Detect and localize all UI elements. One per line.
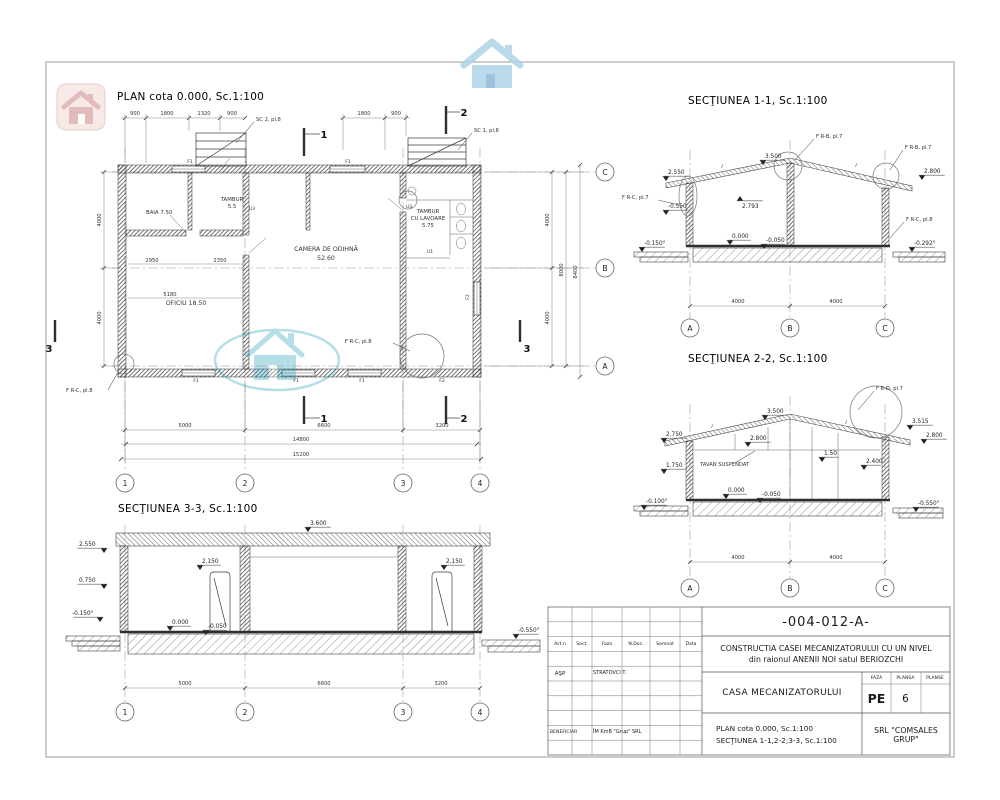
svg-text:3: 3 xyxy=(524,344,531,355)
svg-text:2.150: 2.150 xyxy=(202,559,219,565)
svg-text:4000: 4000 xyxy=(731,299,744,305)
svg-text:1: 1 xyxy=(321,414,328,425)
roof-2-2 xyxy=(665,414,910,446)
watermark-red-house xyxy=(57,84,105,130)
section-3-3-grid xyxy=(125,525,480,703)
dims-1-1: 4000 4000 A B C xyxy=(681,299,894,337)
beneficiar-label: BENEFICIAR xyxy=(550,725,594,740)
svg-text:2.550: 2.550 xyxy=(79,542,96,548)
svg-text:2: 2 xyxy=(461,414,468,425)
svg-text:-0.550°: -0.550° xyxy=(518,628,540,634)
section-2-2-grid xyxy=(690,396,885,580)
svg-text:A: A xyxy=(687,584,693,593)
svg-text:6600: 6600 xyxy=(317,681,330,687)
plan-dims-bottom: 5000 6600 3200 14800 15200 xyxy=(119,380,483,462)
room-oficiu: OFICIU 18.50 xyxy=(166,300,207,307)
section-1-1-title: SECŢIUNEA 1-1, Sc.1:100 xyxy=(688,95,828,107)
faza-header: FAZA xyxy=(862,672,891,684)
svg-text:F1: F1 xyxy=(187,159,193,165)
planse-value xyxy=(920,684,950,713)
plan-grid-lines xyxy=(112,148,596,470)
plansa-header: PLANSA xyxy=(891,672,920,684)
svg-text:2.150: 2.150 xyxy=(446,559,463,565)
svg-text:4000: 4000 xyxy=(829,555,842,561)
svg-text:F R-D, pl.7: F R-D, pl.7 xyxy=(876,386,903,392)
svg-text:4000: 4000 xyxy=(829,299,842,305)
drawing-sheet: PLAN cota 0.000, Sc.1:100 xyxy=(0,0,1000,800)
svg-text:2: 2 xyxy=(461,108,468,119)
room-camera-area: 52.60 xyxy=(317,255,335,262)
section-2-2-title: SECŢIUNEA 2-2, Sc.1:100 xyxy=(688,353,828,365)
section-3-3: SECŢIUNEA 3-3, Sc.1:100 3.600 xyxy=(66,503,540,721)
plan-grid-bubbles-bottom: 1 2 3 4 xyxy=(116,474,489,492)
svg-text:2.800: 2.800 xyxy=(926,433,943,439)
svg-text:3.600: 3.600 xyxy=(310,521,327,527)
svg-text:15200: 15200 xyxy=(293,452,310,458)
content-line-1: PLAN cota 0.000, Sc.1:100 xyxy=(716,723,862,734)
plan-dims-inner: 2950 2350 5180 xyxy=(128,258,243,298)
svg-text:3.515: 3.515 xyxy=(912,419,929,425)
object-name: CASA MECANIZATORULUI xyxy=(702,673,862,713)
callout-frc8-left: F R-C, pl.8 xyxy=(66,388,93,394)
svg-text:1.50: 1.50 xyxy=(824,451,837,457)
svg-text:3: 3 xyxy=(401,708,406,717)
svg-text:5000: 5000 xyxy=(178,681,191,687)
plan-title: PLAN cota 0.000, Sc.1:100 xyxy=(117,91,264,103)
svg-text:A: A xyxy=(687,324,693,333)
section-1-1: SECŢIUNEA 1-1, Sc.1:100 2.550 3.500 xyxy=(622,95,945,337)
svg-text:3: 3 xyxy=(46,344,53,355)
svg-text:A: A xyxy=(602,362,608,371)
svg-text:2.400: 2.400 xyxy=(866,459,883,465)
plan-walls xyxy=(118,165,481,377)
svg-text:1: 1 xyxy=(123,479,128,488)
svg-text:3.500: 3.500 xyxy=(765,154,782,160)
svg-text:2: 2 xyxy=(243,479,248,488)
plan-entrance-stairs xyxy=(196,133,466,166)
title-block: -004-012-A- CONSTRUCTIA CASEI MECANIZATO… xyxy=(548,607,950,755)
svg-text:900: 900 xyxy=(130,111,140,117)
svg-text:C: C xyxy=(882,584,887,593)
faza-value: PE xyxy=(862,684,891,713)
plan-dims-left: 4000 4000 xyxy=(97,170,118,368)
svg-text:0.000: 0.000 xyxy=(172,620,189,626)
ground-hatch-1-1 xyxy=(693,248,882,262)
walls-2-2 xyxy=(686,437,889,500)
project-line-1: CONSTRUCTIA CASEI MECANIZATORULUI CU UN … xyxy=(720,644,931,655)
svg-text:F R-C, pl.8: F R-C, pl.8 xyxy=(906,217,933,223)
svg-text:4: 4 xyxy=(478,708,483,717)
svg-text:C: C xyxy=(602,168,607,177)
svg-text:F1: F1 xyxy=(345,159,351,165)
plan-dims-right: 4000 4000 8000 8400 xyxy=(484,163,584,379)
svg-text:3200: 3200 xyxy=(434,681,447,687)
svg-text:1: 1 xyxy=(123,708,128,717)
plan-drawing: PLAN cota 0.000, Sc.1:100 xyxy=(46,91,614,492)
svg-text:i: i xyxy=(845,420,847,426)
svg-text:B: B xyxy=(787,584,792,593)
plan-windows xyxy=(172,166,480,376)
ground-hatch-3-3 xyxy=(128,634,474,654)
svg-text:900: 900 xyxy=(227,111,237,117)
svg-text:8000: 8000 xyxy=(559,263,565,276)
plan-detail-circles xyxy=(114,191,444,378)
doc-number: -004-012-A- xyxy=(702,608,950,636)
dims-3-3: 5000 6600 3200 1 2 3 4 xyxy=(116,681,489,721)
svg-text:14800: 14800 xyxy=(293,437,310,443)
ground-hatch-2-2 xyxy=(693,502,882,516)
room-lavoar-2: CU LAVOARE xyxy=(411,216,446,222)
svg-text:-0.100°: -0.100° xyxy=(646,499,668,505)
watermark-teal-house xyxy=(215,330,339,390)
svg-text:C: C xyxy=(882,324,887,333)
svg-text:F1: F1 xyxy=(193,378,199,384)
svg-text:B: B xyxy=(787,324,792,333)
roof-3-3 xyxy=(116,533,490,546)
svg-text:-0.150°: -0.150° xyxy=(644,241,666,247)
svg-text:F2: F2 xyxy=(439,378,445,384)
svg-text:2.750: 2.750 xyxy=(666,432,683,438)
project-line-2: din raionul ANENII NOI satul BERIOZCHI xyxy=(749,655,903,666)
sheet-contents: PLAN cota 0.000, Sc.1:100 SECŢIUNEA 1-1,… xyxy=(702,714,862,755)
svg-text:2.800: 2.800 xyxy=(750,436,767,442)
svg-text:i: i xyxy=(855,163,857,169)
asp-cell: AŞP xyxy=(548,666,572,681)
plan-element-tags: F1 F1 F1 F1 F1 F2 F2 U3 U3 U1 xyxy=(187,159,471,384)
room-tambur: TAMBUR xyxy=(220,197,244,203)
svg-text:900: 900 xyxy=(391,111,401,117)
svg-text:1800: 1800 xyxy=(357,111,370,117)
callout-sc2: SC 2, pl.8 xyxy=(256,117,281,123)
svg-text:1320: 1320 xyxy=(197,111,210,117)
col-data: Data xyxy=(680,637,702,652)
planse-header: PLANSE xyxy=(920,672,950,684)
svg-text:F1: F1 xyxy=(359,378,365,384)
svg-text:4000: 4000 xyxy=(97,213,103,226)
room-baia: BAIA 7.50 xyxy=(146,210,173,216)
dims-2-2: 4000 4000 A B C xyxy=(681,555,894,597)
col-sect: Sect. xyxy=(572,637,592,652)
project-description: CONSTRUCTIA CASEI MECANIZATORULUI CU UN … xyxy=(702,637,950,672)
svg-text:4000: 4000 xyxy=(545,311,551,324)
room-camera: CAMERA DE ODIHNĂ xyxy=(294,244,358,253)
col-semnat: Semnat xyxy=(650,637,680,652)
beneficiar-value: ÎM KmB "Grup" SRL xyxy=(593,725,683,740)
svg-text:U3: U3 xyxy=(249,206,255,212)
svg-text:4: 4 xyxy=(478,479,483,488)
svg-text:2950: 2950 xyxy=(145,258,158,264)
firm-name: SRL "COMSALES GRUP" xyxy=(862,714,950,755)
svg-text:U3: U3 xyxy=(406,204,412,210)
svg-text:B: B xyxy=(602,264,607,273)
svg-text:0.000: 0.000 xyxy=(732,234,749,240)
svg-text:i: i xyxy=(711,424,713,430)
svg-text:-0.292°: -0.292° xyxy=(914,241,936,247)
content-line-2: SECŢIUNEA 1-1,2-2;3-3, Sc.1:100 xyxy=(716,735,862,746)
room-lavoar-3: 5.75 xyxy=(422,223,434,229)
watermark-blue-house xyxy=(464,42,520,88)
svg-text:5180: 5180 xyxy=(163,292,176,298)
section-3-3-title: SECŢIUNEA 3-3, Sc.1:100 xyxy=(118,503,258,515)
tavan-label: TAVAN SUSPENDAT xyxy=(699,462,750,468)
svg-text:1800: 1800 xyxy=(160,111,173,117)
svg-text:U1: U1 xyxy=(427,249,433,255)
svg-text:2.793: 2.793 xyxy=(742,204,759,210)
svg-text:1.750: 1.750 xyxy=(666,463,683,469)
svg-text:3: 3 xyxy=(401,479,406,488)
svg-text:i: i xyxy=(721,164,723,170)
svg-text:4000: 4000 xyxy=(545,213,551,226)
proiectant-cell: STRATOVCI T. xyxy=(593,666,653,681)
svg-text:2.550: 2.550 xyxy=(668,170,685,176)
callout-sc1: SC 1, pl.8 xyxy=(474,128,499,134)
svg-text:-0.050: -0.050 xyxy=(208,624,227,630)
svg-text:2350: 2350 xyxy=(213,258,226,264)
svg-text:2.800: 2.800 xyxy=(924,169,941,175)
svg-text:0.000: 0.000 xyxy=(728,488,745,494)
room-tambur-area: 5.5 xyxy=(228,204,237,210)
section-2-2: SECŢIUNEA 2-2, Sc.1:100 3.500 3.515 xyxy=(634,353,947,597)
svg-text:0.750: 0.750 xyxy=(79,578,96,584)
room-lavoar-1: TAMBUR xyxy=(416,209,440,215)
svg-text:F R-B, pl.7: F R-B, pl.7 xyxy=(905,145,931,151)
svg-text:-0.550°: -0.550° xyxy=(918,501,940,507)
svg-text:5000: 5000 xyxy=(178,423,191,429)
svg-text:-0.050: -0.050 xyxy=(766,238,785,244)
plan-wc-area xyxy=(406,187,473,258)
svg-text:8400: 8400 xyxy=(573,265,579,278)
col-actn: Act.n xyxy=(548,637,572,652)
svg-text:4000: 4000 xyxy=(731,555,744,561)
svg-text:4000: 4000 xyxy=(97,311,103,324)
plan-grid-bubbles-right: C B A xyxy=(596,163,614,375)
detail-circle-2-2 xyxy=(850,386,902,438)
svg-text:-0.050: -0.050 xyxy=(762,492,781,498)
svg-text:2: 2 xyxy=(243,708,248,717)
svg-text:F R-C, pl.7: F R-C, pl.7 xyxy=(622,195,649,201)
svg-text:-0.150°: -0.150° xyxy=(72,611,94,617)
col-ndoc: N.Doc. xyxy=(622,637,650,652)
svg-text:F2: F2 xyxy=(465,294,471,300)
callout-frc8-mid: F R-C, pl.8 xyxy=(345,339,372,345)
svg-text:-0.550: -0.550 xyxy=(668,204,687,210)
col-faza: Faza xyxy=(592,637,622,652)
svg-text:F R-B, pl.7: F R-B, pl.7 xyxy=(816,134,842,140)
svg-text:3.500: 3.500 xyxy=(767,409,784,415)
svg-text:1: 1 xyxy=(321,130,328,141)
plansa-value: 6 xyxy=(891,684,920,713)
